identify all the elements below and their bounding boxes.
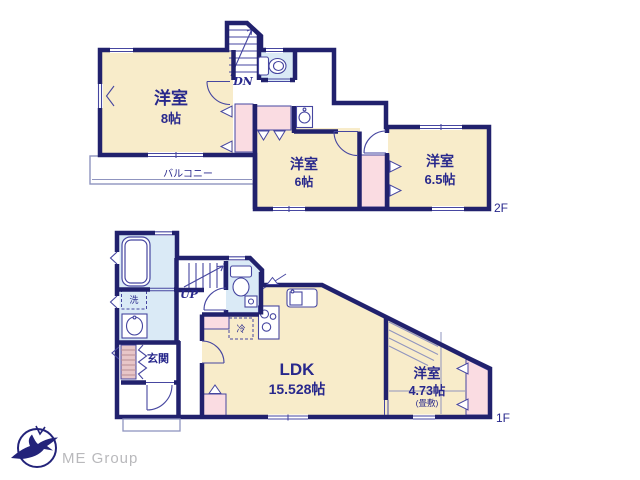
label-tatami-size: 4.73帖 xyxy=(409,383,446,398)
label-western8-name: 洋室 xyxy=(154,88,188,108)
porch-step xyxy=(123,419,180,431)
window-western8-top xyxy=(110,47,133,53)
label-western65-name: 洋室 xyxy=(426,153,454,169)
label-western6-size: 6帖 xyxy=(295,174,314,189)
floorplan-page: 洋室 8帖 洋室 6帖 洋室 6.5帖 バルコニー DN 2F xyxy=(0,0,640,480)
window-western65-top xyxy=(420,124,462,130)
window-western65-south xyxy=(432,206,464,212)
label-tatami-name: 洋室 xyxy=(414,365,441,381)
floor-2f: 洋室 8帖 洋室 6帖 洋室 6.5帖 バルコニー DN 2F xyxy=(90,23,508,215)
label-western65-size: 6.5帖 xyxy=(424,172,455,187)
label-tatami-note: (畳敷) xyxy=(416,398,439,408)
closet-western-8 xyxy=(235,104,253,152)
closet-ldk-corner xyxy=(203,394,226,416)
label-entrance: 玄関 xyxy=(147,351,169,365)
window-western8-balcony-slider xyxy=(148,152,203,158)
window-ldk-south xyxy=(268,415,308,421)
vanity-basin xyxy=(122,314,147,338)
stairs-1f xyxy=(184,263,224,288)
label-western8-size: 8帖 xyxy=(161,111,181,126)
floor-label-1f: 1F xyxy=(496,411,510,425)
kitchen-sink xyxy=(287,289,317,307)
toilet-2f-fixture xyxy=(259,57,287,75)
closet-hall xyxy=(203,316,229,329)
label-stairs-down: DN xyxy=(232,75,254,88)
kitchen-vent-marker xyxy=(267,278,278,285)
label-western6-name: 洋室 xyxy=(290,156,318,172)
door-western-65 xyxy=(364,131,386,153)
washbasin-2f xyxy=(297,107,313,128)
window-tatami-south xyxy=(413,415,435,421)
window-toilet2f-top xyxy=(266,47,283,53)
logo-text: ME Group xyxy=(62,450,138,467)
bathtub xyxy=(122,237,150,286)
door-front-entrance xyxy=(147,385,172,410)
label-laundry: 洗 xyxy=(129,294,138,305)
label-fridge: 冷 xyxy=(236,323,245,334)
window-bath-top xyxy=(155,231,172,237)
closet-western-6 xyxy=(256,106,291,130)
floor-label-2f: 2F xyxy=(494,201,508,215)
door-toilet-1f xyxy=(204,288,226,310)
label-ldk-name: LDK xyxy=(280,360,316,379)
label-balcony: バルコニー xyxy=(163,168,213,180)
closet-between-6-65 xyxy=(360,155,389,207)
entrance-step-line xyxy=(139,345,147,379)
floorplan-canvas: 洋室 8帖 洋室 6帖 洋室 6.5帖 バルコニー DN 2F xyxy=(0,0,640,480)
window-toilet1f-top xyxy=(229,256,245,262)
label-stairs-up: UP xyxy=(180,288,199,301)
window-western6-south xyxy=(273,206,305,212)
floor-1f: LDK 15.528帖 洋室 4.73帖 (畳敷) 玄関 洗 冷 UP 1F xyxy=(111,231,511,432)
label-ldk-size: 15.528帖 xyxy=(269,381,326,397)
company-logo: ME Group xyxy=(11,426,138,467)
entrance-shoe-cabinet xyxy=(121,345,136,379)
